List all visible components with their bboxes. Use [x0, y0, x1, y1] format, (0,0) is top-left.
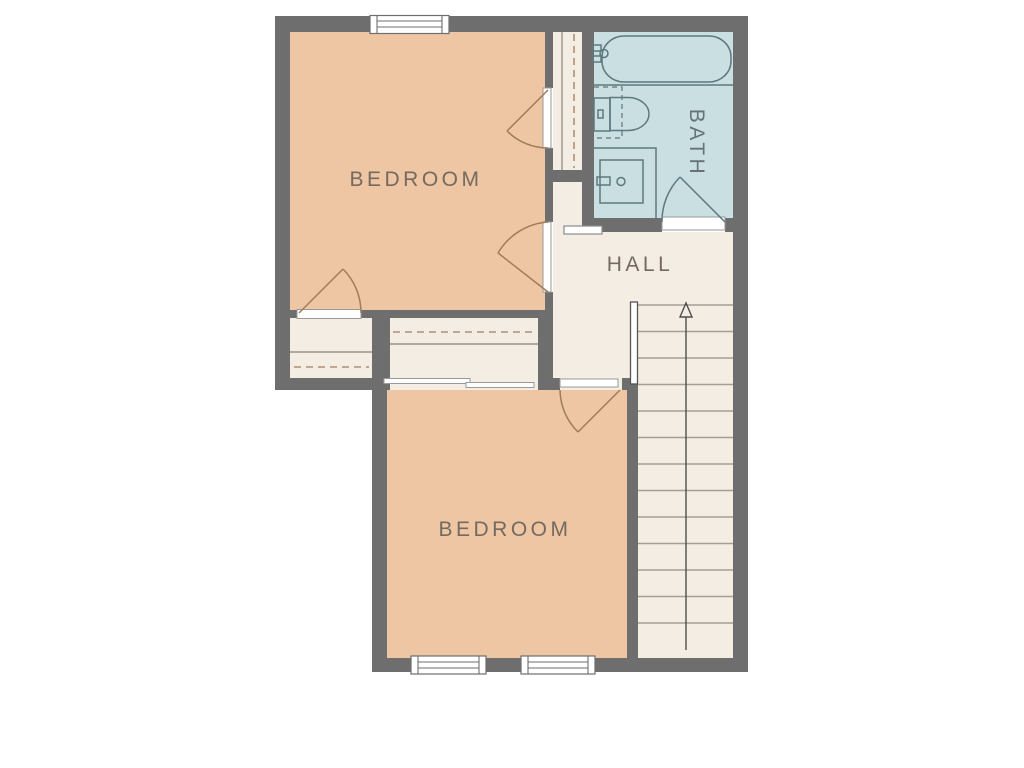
sliding-door-panel-2 — [466, 383, 534, 388]
wall-below-bedroom-a — [290, 310, 297, 318]
bath-door-panel — [662, 217, 725, 230]
wall-door-jamb-left — [538, 378, 560, 390]
wall-exterior-left-upper — [275, 16, 290, 390]
wall-bedroom-right-b — [545, 148, 553, 222]
bath-label: BATH — [685, 109, 708, 177]
wall-linen-divider — [553, 170, 582, 182]
bedroom-bottom-label: BEDROOM — [438, 518, 571, 541]
wall-bedroom-right-a — [545, 32, 553, 88]
left-closet-door-panel — [297, 310, 361, 319]
wall-closet-divider — [372, 318, 390, 378]
bedroom-top-door-panel — [543, 222, 551, 292]
hall-label: HALL — [607, 253, 674, 276]
hall-shelf — [564, 226, 602, 234]
wall-below-bedroom-b — [361, 310, 553, 318]
bedroom-top-label: BEDROOM — [349, 168, 482, 191]
wall-stairs-left — [627, 384, 638, 658]
wall-bath-bottom-b — [725, 218, 733, 232]
wall-left-block-bottom — [275, 378, 390, 390]
bedroom-bottom-door-panel — [560, 379, 618, 387]
left-closet-floor — [290, 318, 372, 378]
window-bottom-bedroom-2 — [521, 656, 595, 674]
floor-plan: BEDROOM BEDROOM HALL BATH — [0, 0, 1024, 768]
linen-closet-floor — [553, 32, 582, 170]
wall-exterior-left-lower — [372, 378, 387, 672]
hall-nook-floor — [553, 182, 582, 232]
closet-door-panel — [543, 88, 551, 148]
stair-guard-rail — [631, 302, 638, 384]
wall-bath-left — [582, 32, 594, 218]
bath-floor — [594, 32, 733, 218]
wall-exterior-top — [275, 16, 748, 32]
window-bottom-bedroom-1 — [411, 656, 486, 674]
sliding-door-panel-1 — [384, 379, 470, 384]
window-top-bedroom — [370, 16, 449, 34]
floor-plan-page: BEDROOM BEDROOM HALL BATH — [0, 0, 1024, 768]
wall-exterior-right — [733, 16, 748, 672]
hall-lower-floor — [553, 302, 638, 378]
right-closet-floor — [390, 318, 538, 378]
